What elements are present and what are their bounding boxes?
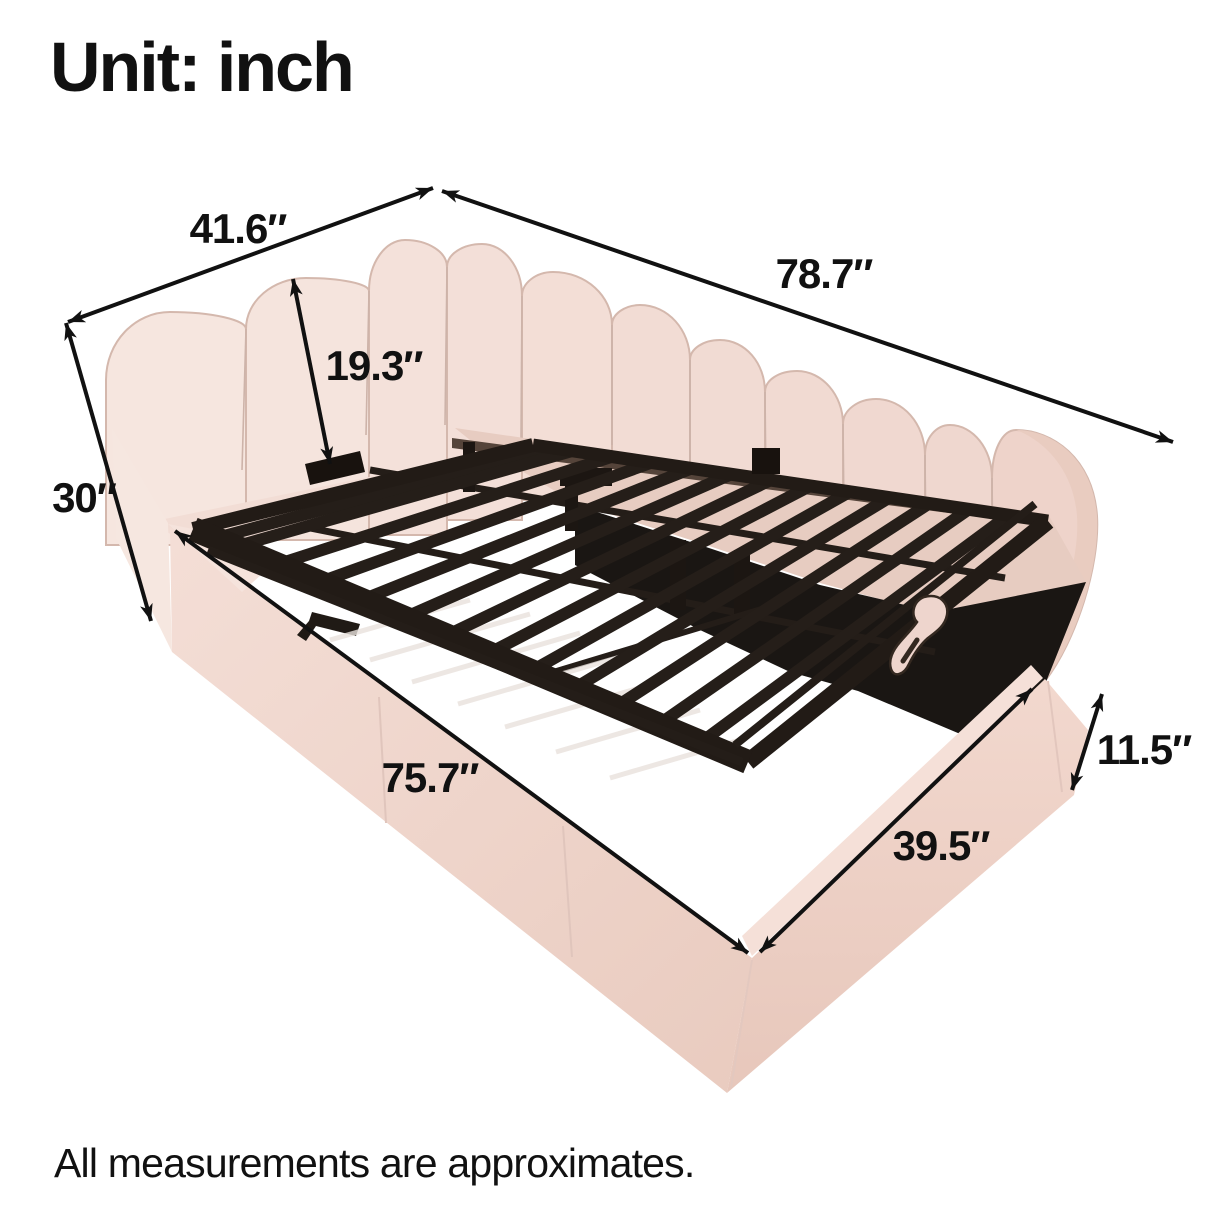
svg-text:30″: 30″ — [52, 474, 117, 521]
svg-text:78.7″: 78.7″ — [776, 250, 874, 297]
svg-text:Unit: inch: Unit: inch — [50, 28, 353, 106]
svg-text:41.6″: 41.6″ — [190, 205, 288, 252]
svg-text:19.3″: 19.3″ — [326, 342, 424, 389]
svg-text:All measurements are approxima: All measurements are approximates. — [54, 1140, 694, 1186]
svg-text:39.5″: 39.5″ — [893, 822, 991, 869]
svg-text:75.7″: 75.7″ — [382, 754, 480, 801]
svg-text:11.5″: 11.5″ — [1097, 726, 1192, 773]
